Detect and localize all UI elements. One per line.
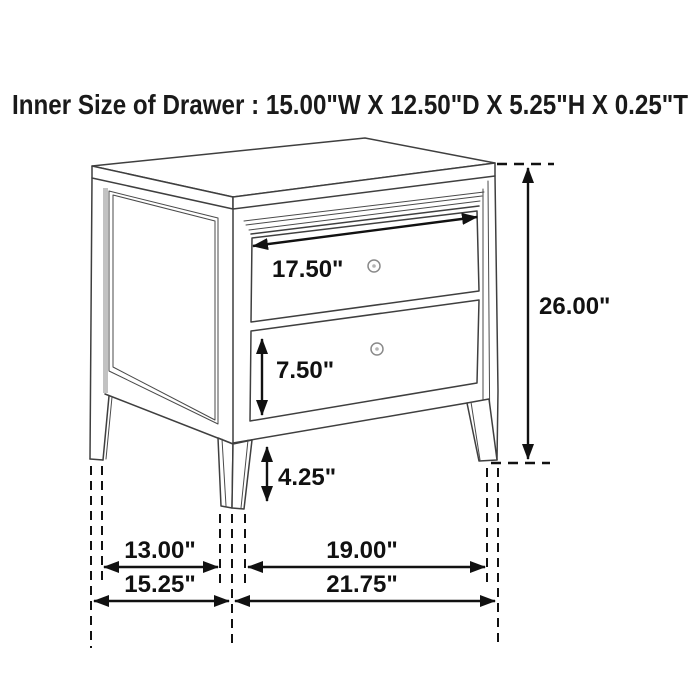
left-side-panel: [105, 188, 233, 444]
dim-front-leg-spacing: 19.00": [248, 537, 485, 567]
dimension-label: 15.25": [124, 571, 195, 598]
back-left-leg-taper-1: [103, 396, 109, 460]
dim-front-overall-width: 21.75": [235, 571, 495, 601]
dim-overall-height: 26.00": [491, 164, 610, 463]
front-left-leg: [218, 438, 252, 509]
dimension-label: 19.00": [326, 537, 397, 564]
dimension-label: 26.00": [539, 293, 610, 320]
furniture-dimension-diagram: Inner Size of Drawer : 15.00"W X 12.50"D…: [0, 0, 700, 700]
dimension-label: 13.00": [124, 537, 195, 564]
nightstand-diagram-svg: Inner Size of Drawer : 15.00"W X 12.50"D…: [0, 0, 700, 700]
side-recessed-panel-inner: [113, 195, 215, 420]
back-left-leg-foot: [90, 459, 103, 460]
nightstand-drawing: [90, 138, 498, 509]
back-left-leg-outer-edge: [90, 178, 92, 459]
top-drawer-knob-dot: [372, 264, 376, 268]
dimension-label: 4.25": [278, 464, 336, 491]
dim-side-leg-spacing: 13.00": [104, 537, 218, 567]
bottom-drawer-knob-dot: [375, 347, 379, 351]
dimension-label: 17.50": [272, 256, 343, 283]
dimension-label: 21.75": [326, 571, 397, 598]
dim-leg-height: 4.25": [267, 447, 336, 501]
back-left-leg-taper-2: [106, 397, 112, 459]
dimension-label: 7.50": [276, 357, 334, 384]
diagram-title: Inner Size of Drawer : 15.00"W X 12.50"D…: [12, 89, 688, 120]
front-right-leg: [467, 399, 497, 461]
front-right-silhouette-edge: [495, 176, 498, 460]
dim-side-overall-depth: 15.25": [94, 571, 229, 601]
side-recessed-panel-outer: [109, 191, 218, 424]
